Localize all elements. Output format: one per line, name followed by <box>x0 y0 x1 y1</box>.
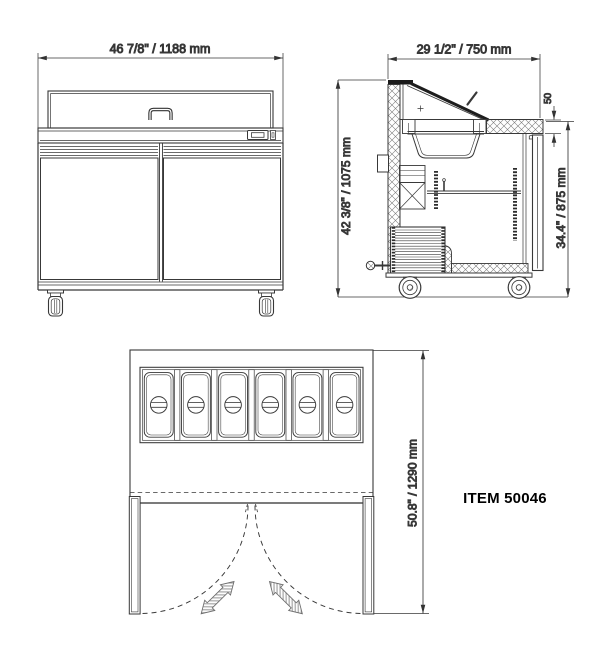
pan-divider <box>286 370 291 441</box>
front-counter <box>38 128 283 143</box>
plan-view: 50.8" / 1290 mm <box>129 350 429 619</box>
open-lid <box>400 84 489 121</box>
pan-well-assembly <box>140 367 363 442</box>
front-width-dimension-label: 46 7/8" / 1188 mm <box>110 42 211 56</box>
pan-divider <box>212 370 217 441</box>
food-pan-section <box>408 132 485 159</box>
front-lid <box>48 91 273 128</box>
side-overall-height-dimension: 42 3/8" / 1075 mm <box>338 80 386 297</box>
front-door-right <box>164 158 281 280</box>
drawing-sheet: 46 7/8" / 1188 mm <box>0 0 611 663</box>
front-door-left <box>41 158 159 280</box>
left-door-swing-arc <box>140 506 248 614</box>
plan-door-right-open <box>363 497 374 615</box>
food-pan-5 <box>293 373 322 438</box>
evaporator-box <box>400 166 426 210</box>
food-pan-2 <box>181 373 210 438</box>
front-caster-right <box>259 290 275 316</box>
front-caster-left <box>48 290 64 316</box>
food-pan-3 <box>219 373 248 438</box>
lid-handle-icon <box>150 110 171 121</box>
door-louver-lines <box>40 147 281 156</box>
pan-divider <box>323 370 328 441</box>
temperature-display-icon <box>248 131 276 140</box>
front-width-dimension: 46 7/8" / 1188 mm <box>38 42 283 128</box>
lid-handle-side-icon <box>468 93 477 105</box>
food-pan-6 <box>330 373 359 438</box>
food-pan-1 <box>144 373 173 438</box>
wall-junction-box <box>378 155 389 172</box>
pan-divider <box>175 370 180 441</box>
side-body <box>366 80 543 298</box>
right-swing-arrow-icon <box>264 576 307 619</box>
drain-valve-icon <box>366 261 390 270</box>
counter-thickness-dimension: 50 <box>543 92 561 147</box>
front-view: 46 7/8" / 1188 mm <box>38 42 283 316</box>
side-view: 29 1/2" / 750 mm 42 3/8" / 1075 mm 34.4"… <box>338 43 574 299</box>
side-counter-height-dimension: 34.4" / 875 mm <box>546 122 574 298</box>
food-pan-4 <box>256 373 285 438</box>
plan-depth-dimension: 50.8" / 1290 mm <box>373 351 429 614</box>
condenser-coil-icon <box>391 227 446 273</box>
door-swing <box>129 497 373 619</box>
left-swing-arrow-icon <box>196 576 239 619</box>
side-caster-rear <box>508 277 530 299</box>
side-door <box>523 134 543 271</box>
side-counter-height-label: 34.4" / 875 mm <box>554 168 568 249</box>
insulated-counter <box>487 120 544 134</box>
pan-divider <box>249 370 254 441</box>
plan-door-left-open <box>129 497 140 615</box>
plan-depth-dimension-label: 50.8" / 1290 mm <box>406 439 420 527</box>
side-caster-front <box>399 277 421 299</box>
side-overall-height-label: 42 3/8" / 1075 mm <box>339 137 353 235</box>
side-depth-dimension-label: 29 1/2" / 750 mm <box>417 43 512 57</box>
right-door-swing-arc <box>255 506 363 614</box>
technical-drawing: 46 7/8" / 1188 mm <box>0 0 611 663</box>
hood-top-cap <box>388 80 413 85</box>
counter-thickness-label: 50 <box>543 92 554 104</box>
front-doors <box>38 143 283 290</box>
item-number-label: ITEM 50046 <box>463 490 547 507</box>
